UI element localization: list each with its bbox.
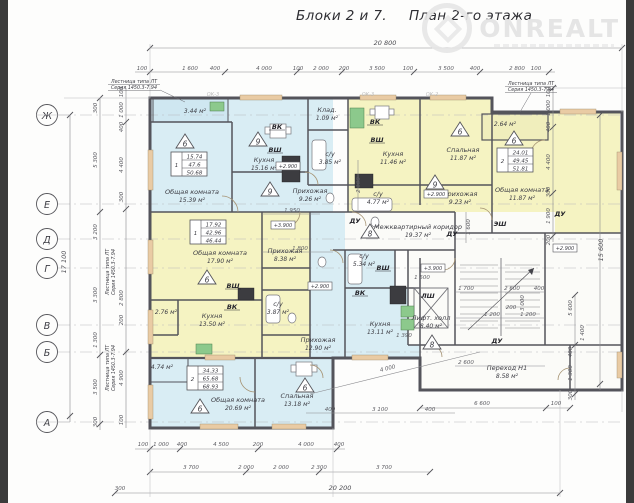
room-area: 20.69 м² bbox=[225, 405, 252, 412]
dim: 400 bbox=[177, 442, 188, 448]
dim-overall-bottom: 20 200 bbox=[329, 484, 352, 492]
stamp-living: 24.01 bbox=[513, 151, 529, 157]
grid-row-label: Д bbox=[42, 235, 50, 246]
dim: 200 bbox=[339, 66, 350, 72]
dim: 2 800 bbox=[119, 290, 125, 306]
room-area: 15.16 м² bbox=[251, 165, 278, 172]
dim: 200 bbox=[506, 305, 517, 311]
room-area: 13.18 м² bbox=[284, 401, 311, 408]
stamp-rooms: 1 bbox=[194, 231, 198, 237]
room-area: 3.87 м² bbox=[267, 309, 290, 316]
badge-number: 8 bbox=[430, 341, 435, 350]
dim: 5 600 bbox=[568, 300, 574, 316]
dim: 1 200 bbox=[520, 312, 536, 318]
room-name: Кухня bbox=[370, 320, 391, 328]
dim: 400 bbox=[325, 407, 336, 413]
badge-number: 6 bbox=[198, 405, 203, 414]
watermark-brand: ONREALT bbox=[479, 14, 620, 43]
grid-row-label: В bbox=[44, 321, 51, 332]
room-area: 17.90 м² bbox=[207, 258, 234, 265]
dim: 100 bbox=[137, 66, 148, 72]
watermark-logo-icon bbox=[422, 3, 472, 53]
dim: 400 bbox=[568, 346, 574, 357]
dim-overall-right: 15 600 bbox=[597, 239, 605, 262]
dim: 1 000 bbox=[153, 442, 169, 448]
elevation-value: +2.900 bbox=[279, 164, 298, 170]
stamp-useful: 65.68 bbox=[203, 377, 219, 383]
dim: 400 bbox=[546, 121, 552, 132]
room-name: Лифт. холл bbox=[411, 314, 451, 322]
badge-number: 6 bbox=[183, 140, 188, 149]
dim-chain-passage-bottom: 6 600 100 bbox=[474, 401, 562, 407]
dim: 200 bbox=[546, 234, 552, 245]
dim: 3 000 bbox=[520, 295, 526, 311]
room-name: с/у bbox=[325, 150, 335, 158]
note-line1: Лестница типа ЛТ bbox=[110, 79, 158, 85]
room-name: Спальная bbox=[281, 392, 314, 400]
room-area: 2.64 м² bbox=[494, 121, 517, 128]
dim: 200 bbox=[253, 442, 264, 448]
dim-chain-bottom2: 3 700 2 000 2 000 2 300 3 700 bbox=[183, 465, 392, 471]
note-line1: Лестница типа ЛТ bbox=[507, 81, 555, 87]
dim: 3 700 bbox=[376, 465, 392, 471]
dim: 400 bbox=[210, 66, 221, 72]
stamp-living: 15.74 bbox=[187, 155, 203, 161]
room-area: 8.38 м² bbox=[274, 256, 297, 263]
window-tag: ОК-3 bbox=[362, 92, 374, 98]
label-lsh: ЛШ bbox=[420, 292, 434, 300]
dim: 1 400 bbox=[580, 325, 586, 341]
label-du: ДУ bbox=[349, 217, 362, 225]
dim: 5 300 bbox=[93, 152, 99, 168]
dim: 300 bbox=[93, 102, 99, 113]
dim: 100 bbox=[119, 414, 125, 425]
badge-number: 6 bbox=[458, 128, 463, 137]
dim: 300 bbox=[93, 416, 99, 427]
dim: 2 800 bbox=[509, 66, 525, 72]
room-area: 8.40 м² bbox=[420, 323, 443, 330]
dim: 2 600 bbox=[504, 286, 520, 292]
room-area: 5.34 м² bbox=[353, 261, 376, 268]
note-line2: Серия 1450.3-7.94 bbox=[508, 87, 554, 93]
stamp-total: 68.93 bbox=[203, 385, 219, 391]
note-line1: Лестница типа ЛТ bbox=[105, 344, 111, 392]
dim: 1 000 bbox=[546, 100, 552, 116]
dim: 2 100 bbox=[356, 177, 362, 193]
dim: 100 bbox=[551, 401, 562, 407]
title-blocks: Блоки 2 и 7. bbox=[296, 8, 387, 24]
grid-row-label: Е bbox=[44, 200, 50, 211]
dim: 4 500 bbox=[213, 442, 229, 448]
dim: 200 bbox=[119, 314, 125, 325]
dim: 100 bbox=[531, 66, 542, 72]
stamp-living: 17.92 bbox=[206, 223, 222, 229]
room-area: 3.85 м² bbox=[319, 159, 342, 166]
dim: 100 bbox=[293, 66, 304, 72]
stamp-useful: 49.45 bbox=[513, 159, 529, 165]
badge-number: 6 bbox=[512, 137, 517, 146]
room-name: с/у bbox=[359, 252, 369, 260]
grid-row-label: Б bbox=[44, 348, 51, 359]
room-name: Кухня bbox=[254, 156, 275, 164]
dim: 3 300 bbox=[93, 287, 99, 303]
dim: 300 bbox=[119, 191, 125, 202]
room-area: 19.37 м² bbox=[405, 232, 432, 239]
room-area: 12.90 м² bbox=[305, 345, 332, 352]
room-area: 8.58 м² bbox=[496, 373, 519, 380]
room-area: 4.77 м² bbox=[367, 199, 390, 206]
dim: 400 bbox=[334, 442, 345, 448]
dim: 4 400 bbox=[119, 157, 125, 173]
room-area: 9.26 м² bbox=[299, 196, 322, 203]
window-tag: ОК-2 bbox=[426, 92, 438, 98]
dim: 400 bbox=[119, 121, 125, 132]
dim: 100 bbox=[138, 442, 149, 448]
badge-number: 6 bbox=[205, 276, 210, 285]
plan-drawing: Ж Е Д Г В Б А 20 800 20 200 300 17 100 1… bbox=[0, 0, 634, 503]
label-esh: ЭШ bbox=[494, 220, 507, 228]
room-name: Общая комната bbox=[165, 188, 219, 196]
note-line2: Серия 1450.3-7.94 bbox=[111, 345, 117, 391]
elevation-value: +3.900 bbox=[274, 223, 293, 229]
dim: 1 950 bbox=[284, 208, 300, 214]
room-name: Прихожая bbox=[293, 187, 328, 195]
dim: 1 500 bbox=[414, 275, 430, 281]
label-du: ДУ bbox=[446, 230, 459, 238]
dim: 4 000 bbox=[256, 66, 272, 72]
elevation-value: +2.900 bbox=[427, 192, 446, 198]
dim-chain-bottom1: 100 1 000 400 4 500 200 4 000 400 bbox=[138, 442, 345, 448]
room-name: Кухня bbox=[202, 312, 223, 320]
room-area: 9.23 м² bbox=[449, 199, 472, 206]
dim: 1 600 bbox=[466, 219, 472, 235]
stair-note-left-mid: Лестница типа ЛТ Серия 1450.3-7.94 bbox=[105, 248, 117, 296]
dim: 400 bbox=[425, 407, 436, 413]
note-line2: Серия 1450.3-7.94 bbox=[111, 85, 157, 91]
stamp-rooms: 1 bbox=[175, 163, 179, 169]
label-du: ДУ bbox=[554, 210, 567, 218]
badge-number: 9 bbox=[268, 188, 273, 197]
room-name: Прихожая bbox=[301, 336, 336, 344]
room-area: 15.39 м² bbox=[179, 197, 206, 204]
room-name: Спальная bbox=[447, 146, 480, 154]
dim: 400 bbox=[534, 286, 545, 292]
room-area: 13.50 м² bbox=[199, 321, 226, 328]
dim: 6 600 bbox=[474, 401, 490, 407]
page-left-edge bbox=[0, 0, 8, 503]
dim-chain-left-inner: 100 1 000 400 4 400 300 2 800 200 4 900 … bbox=[119, 86, 125, 425]
dim-overall-left: 17 100 bbox=[60, 251, 68, 274]
page-right-edge bbox=[626, 0, 634, 503]
stamp-total: 50.68 bbox=[187, 171, 203, 177]
dim: 2 000 bbox=[273, 465, 289, 471]
grid-row-label: А bbox=[43, 418, 51, 429]
dim: 1 000 bbox=[119, 102, 125, 118]
badge-number: 8 bbox=[368, 230, 373, 239]
dim: 2 000 bbox=[313, 66, 329, 72]
dim: 1 300 bbox=[568, 365, 574, 381]
note-line2: Серия 1450.3-7.94 bbox=[111, 249, 117, 295]
dim-overall-top: 20 800 bbox=[374, 39, 397, 47]
room-name: Клад. bbox=[317, 106, 336, 114]
room-area: 11.87 м² bbox=[450, 155, 477, 162]
stamp-useful: 42.96 bbox=[206, 231, 222, 237]
dim: 3 200 bbox=[93, 224, 99, 240]
dim: 300 bbox=[568, 389, 574, 400]
dim: 2 600 bbox=[458, 360, 474, 366]
dim: 3 700 bbox=[183, 465, 199, 471]
label-du: ДУ bbox=[491, 337, 504, 345]
dim: 3 500 bbox=[438, 66, 454, 72]
dim: 3 500 bbox=[93, 379, 99, 395]
stamp-useful: 47.6 bbox=[188, 163, 201, 169]
badge-number: 9 bbox=[256, 138, 261, 147]
dim: 1 900 bbox=[546, 208, 552, 224]
room-name: Прихожая bbox=[268, 247, 303, 255]
grid-row-label: Г bbox=[44, 264, 50, 275]
dim-bottom-offset: 300 bbox=[115, 486, 126, 492]
stamp-apartment-1: 1 15.74 47.6 50.68 bbox=[171, 152, 207, 177]
dim: 1 390 bbox=[396, 333, 412, 339]
note-line1: Лестница типа ЛТ bbox=[105, 248, 111, 296]
dim: 2 300 bbox=[311, 465, 327, 471]
dim: 4 400 bbox=[546, 154, 552, 170]
room-name: Общая комната bbox=[193, 249, 247, 257]
stair-note-left-low: Лестница типа ЛТ Серия 1450.3-7.94 bbox=[105, 344, 117, 392]
dim: 4 000 bbox=[379, 364, 396, 374]
room-area: 11.46 м² bbox=[380, 159, 407, 166]
grid-row-label: Ж bbox=[41, 111, 53, 122]
stamp-apartment-4: 2 34.33 65.68 68.93 bbox=[187, 366, 223, 391]
watermark-subtext bbox=[494, 44, 614, 47]
stamp-apartment-2: 1 17.92 42.96 46.44 bbox=[190, 220, 226, 245]
dim: 1 300 bbox=[93, 332, 99, 348]
elevation-value: +3.900 bbox=[424, 266, 443, 272]
room-name: с/у bbox=[273, 300, 283, 308]
room-name: Общая комната bbox=[495, 186, 549, 194]
dim: 2 000 bbox=[238, 465, 254, 471]
dim: 100 bbox=[403, 66, 414, 72]
room-area: 4.74 м² bbox=[151, 364, 174, 371]
dim: 4 900 bbox=[119, 370, 125, 386]
room-area: 13.11 м² bbox=[367, 329, 394, 336]
dim: 1 200 bbox=[484, 312, 500, 318]
elevation-value: +2.900 bbox=[311, 284, 330, 290]
stamp-total: 51.81 bbox=[513, 167, 529, 173]
stamp-rooms: 2 bbox=[191, 377, 195, 383]
stamp-total: 46.44 bbox=[206, 239, 222, 245]
room-area: 2.76 м² bbox=[155, 309, 178, 316]
room-name: Кухня bbox=[383, 150, 404, 158]
room-name: Переход Н1 bbox=[487, 364, 527, 372]
dim-chain-right-inner: 100 1 000 400 4 400 300 1 900 200 bbox=[546, 86, 552, 245]
dim-chain-left-outer: 300 5 300 3 200 3 300 1 300 3 500 300 bbox=[93, 102, 99, 427]
room-name: Общая комната bbox=[211, 396, 265, 404]
room-area: 11.87 м² bbox=[509, 195, 536, 202]
dim: 3 500 bbox=[369, 66, 385, 72]
room-name: с/у bbox=[373, 190, 383, 198]
dim: 400 bbox=[470, 66, 481, 72]
floor-plan-page: Блоки 2 и 7.План 2-го этажа ONREALT bbox=[0, 0, 634, 503]
badge-number: 6 bbox=[303, 384, 308, 393]
room-area: 3.44 м² bbox=[184, 108, 207, 115]
stamp-apartment-3: 2 24.01 49.45 51.81 bbox=[497, 148, 533, 173]
dim: 1 600 bbox=[182, 66, 198, 72]
grid-bubbles: Ж Е Д Г В Б А bbox=[37, 105, 58, 433]
stamp-living: 34.33 bbox=[203, 369, 219, 375]
badge-number: 9 bbox=[433, 181, 438, 190]
room-area: 1.09 м² bbox=[316, 115, 339, 122]
dim: 1 700 bbox=[458, 286, 474, 292]
dim: 3 100 bbox=[372, 407, 388, 413]
window-tag: ОК-3 bbox=[207, 92, 219, 98]
elevation-value: +2.900 bbox=[556, 246, 575, 252]
stamp-rooms: 2 bbox=[501, 159, 505, 165]
dim: 4 000 bbox=[298, 442, 314, 448]
